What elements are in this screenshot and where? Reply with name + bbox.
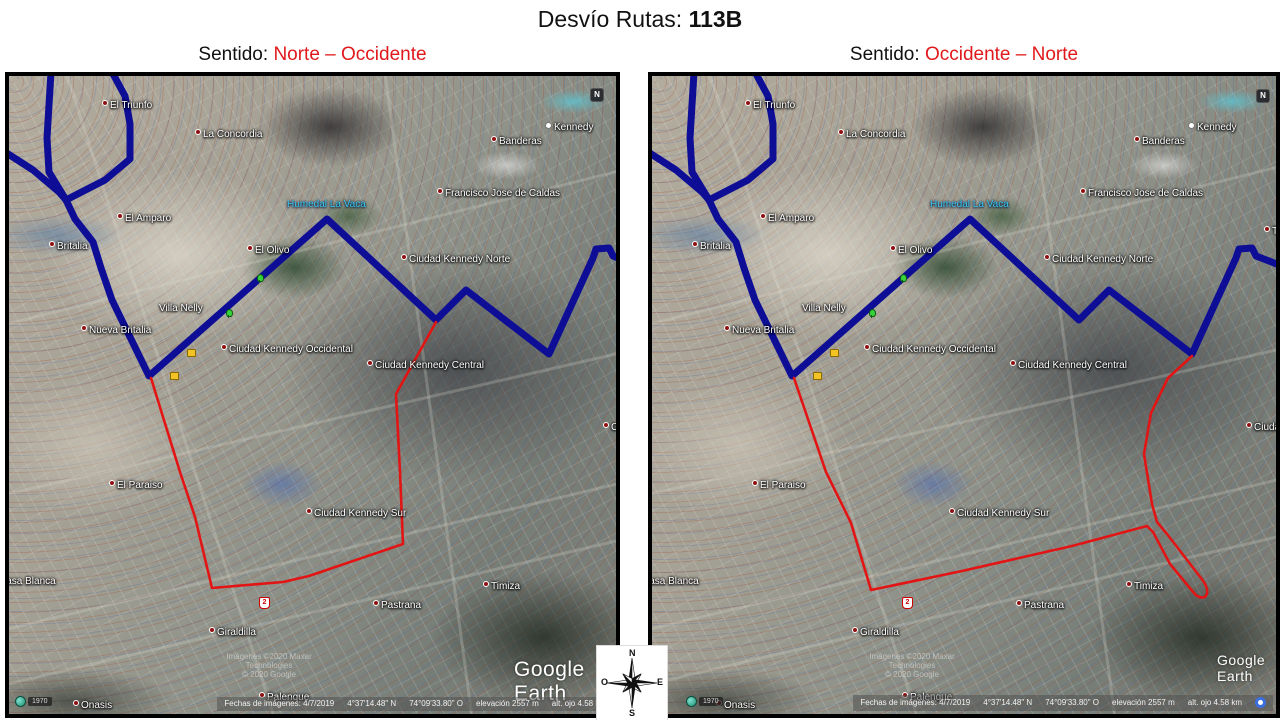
north-up-button[interactable]: N	[590, 88, 604, 102]
compass-west-label: O	[601, 677, 608, 687]
place-dot-icon	[221, 344, 227, 350]
road-marker-icon	[187, 349, 196, 357]
routes-svg	[9, 76, 616, 714]
map-label-la-concordia: La Concordia	[838, 129, 905, 140]
imagery-date: Fechas de imágenes: 4/7/2019	[860, 698, 970, 707]
map-label-giraldilla: Giraldilla	[209, 627, 256, 638]
place-dot-icon	[209, 627, 215, 633]
map-label-banderas: Banderas	[1134, 136, 1185, 147]
eye-altitude: alt. ojo 4.58 km	[1188, 698, 1242, 707]
map-label-techo: Techo	[1264, 226, 1276, 237]
page-title: Desvío Rutas: 113B	[0, 6, 1280, 33]
map-label-timiza: Timiza	[1126, 581, 1163, 592]
sentido-direction: Norte – Occidente	[273, 44, 426, 65]
map-label-humedal-la-vaca: Humedal La Vaca	[287, 200, 366, 210]
place-dot-icon	[306, 508, 312, 514]
place-dot-icon	[1044, 254, 1050, 260]
route-blue-main	[652, 152, 709, 200]
map-panel-norte-occidente: El TriunfoLa ConcordiaKennedyBanderasFra…	[5, 72, 620, 718]
place-dot-icon	[373, 600, 379, 606]
place-pin-icon	[545, 122, 552, 129]
place-dot-icon	[752, 480, 758, 486]
imagery-date: Fechas de imágenes: 4/7/2019	[224, 699, 334, 708]
place-dot-icon	[117, 213, 123, 219]
map-label-el-paraiso: El Paraiso	[752, 480, 806, 491]
map-label-el-olivo: El Olivo	[247, 245, 289, 256]
map-label-onasis: Onasis	[73, 700, 112, 711]
route-red-detour	[794, 356, 1207, 598]
attribution-line: © 2020 Google	[847, 670, 977, 679]
historical-imagery-icon[interactable]	[686, 696, 697, 707]
place-dot-icon	[102, 100, 108, 106]
place-dot-icon	[247, 245, 253, 251]
street-line	[707, 76, 922, 714]
map-label-ciudad-kennedy-occidental: Ciudad Kennedy Occidental	[221, 344, 353, 355]
longitude: 74°09'33.80" O	[409, 699, 463, 708]
attribution-line: Imágenes ©2020 Maxar Technologies	[204, 652, 334, 670]
place-dot-icon	[852, 627, 858, 633]
map-label-el-triunfo: El Triunfo	[102, 100, 152, 111]
route-blue-main	[9, 152, 66, 200]
street-line	[652, 344, 1276, 496]
map-label-ciudad-kennedy-sur: Ciudad Kennedy Sur	[949, 508, 1049, 519]
street-line	[9, 344, 616, 496]
place-dot-icon	[49, 241, 55, 247]
latitude: 4°37'14.48" N	[983, 698, 1032, 707]
north-up-button[interactable]: N	[1256, 89, 1270, 103]
google-earth-orb-icon	[1255, 697, 1266, 708]
slide: Desvío Rutas: 113B Sentido: Norte – Occi…	[0, 0, 1280, 720]
place-dot-icon	[109, 480, 115, 486]
map-label-ciudad-kennedy-occidental: Ciudad Kennedy Occidental	[864, 344, 996, 355]
imagery-attribution: Imágenes ©2020 Maxar Technologies © 2020…	[204, 652, 334, 679]
map-label-ciudad-kennedy-norte: Ciudad Kennedy Norte	[1044, 254, 1153, 265]
place-dot-icon	[864, 344, 870, 350]
map-label-el-paraiso: El Paraiso	[109, 480, 163, 491]
map-label-nueva-britalia: Nueva Britalia	[724, 325, 794, 336]
map-label-la-concordia: La Concordia	[195, 129, 262, 140]
map-label-ciudad-kennedy-central: Ciudad Kennedy Central	[1010, 360, 1127, 371]
place-dot-icon	[760, 213, 766, 219]
place-dot-icon	[1080, 188, 1086, 194]
sentido-direction: Occidente – Norte	[925, 44, 1078, 65]
elevation: elevación 2557 m	[1112, 698, 1175, 707]
map-label-humedal-la-vaca: Humedal La Vaca	[930, 200, 1009, 210]
compass-point	[607, 683, 632, 686]
compass-south-label: S	[629, 708, 635, 718]
street-line	[64, 76, 279, 714]
map-label-britalia: Britalia	[692, 241, 731, 252]
status-bar: Fechas de imágenes: 4/7/2019 4°37'14.48"…	[853, 695, 1273, 711]
map-label-ciudad: Ciudad	[603, 422, 616, 433]
tree-icon	[899, 274, 906, 283]
map-label-villa-nelly: Villa Nelly	[159, 304, 203, 314]
map-label-banderas: Banderas	[491, 136, 542, 147]
street-line	[1027, 76, 1117, 714]
place-dot-icon	[890, 245, 896, 251]
place-dot-icon	[745, 100, 751, 106]
elevation: elevación 2557 m	[476, 699, 539, 708]
imagery-year-badge: 1970	[28, 697, 52, 706]
map-label-ciudad-kennedy-norte: Ciudad Kennedy Norte	[401, 254, 510, 265]
left-panel-heading: Sentido: Norte – Occidente	[5, 44, 620, 66]
map-label-el-olivo: El Olivo	[890, 245, 932, 256]
right-panel-heading: Sentido: Occidente – Norte	[648, 44, 1280, 66]
longitude: 74°09'33.80" O	[1045, 698, 1099, 707]
map-label-villa-nelly: Villa Nelly	[802, 304, 846, 314]
place-dot-icon	[367, 360, 373, 366]
map-label-timiza: Timiza	[483, 581, 520, 592]
place-dot-icon	[401, 254, 407, 260]
road-marker-icon	[830, 349, 839, 357]
place-dot-icon	[483, 581, 489, 587]
place-dot-icon	[1264, 226, 1270, 232]
map-label-el-triunfo: El Triunfo	[745, 100, 795, 111]
compass-east-label: E	[657, 677, 663, 687]
sentido-label: Sentido:	[850, 44, 920, 65]
compass-point	[632, 680, 657, 683]
place-pin-icon	[1188, 122, 1195, 129]
place-dot-icon	[1016, 600, 1022, 606]
map-label-pastrana: Pastrana	[373, 600, 421, 611]
street-line	[9, 474, 616, 631]
route-number-shield: 2	[259, 597, 270, 609]
map-label-francisco-jose-de-caldas: Francisco Jose de Caldas	[1080, 188, 1203, 199]
title-prefix: Desvío Rutas:	[538, 6, 689, 32]
compass-point	[632, 683, 635, 708]
satellite-map-viewport[interactable]: El TriunfoLa ConcordiaKennedyBanderasFra…	[9, 76, 616, 714]
imagery-year-badge: 1970	[699, 697, 723, 706]
map-label-kennedy: Kennedy	[545, 122, 593, 133]
map-label-kennedy: Kennedy	[1188, 122, 1236, 133]
map-label-casa-blanca: Casa Blanca	[652, 577, 699, 587]
map-panel-occidente-norte: El TriunfoLa ConcordiaKennedyBanderasFra…	[648, 72, 1280, 718]
street-line	[384, 76, 474, 714]
place-dot-icon	[437, 188, 443, 194]
map-label-ciudad-kennedy-sur: Ciudad Kennedy Sur	[306, 508, 406, 519]
route-blue-main	[66, 76, 130, 200]
compass-rose: N S E O	[597, 646, 667, 720]
map-label-giraldilla: Giraldilla	[852, 627, 899, 638]
imagery-attribution: Imágenes ©2020 Maxar Technologies © 2020…	[847, 652, 977, 679]
place-dot-icon	[1134, 136, 1140, 142]
map-label-el-amparo: El Amparo	[760, 213, 814, 224]
map-label-ciudad-kennedy-central: Ciudad Kennedy Central	[367, 360, 484, 371]
satellite-map-viewport[interactable]: El TriunfoLa ConcordiaKennedyBanderasFra…	[652, 76, 1276, 714]
place-dot-icon	[724, 325, 730, 331]
map-label-pastrana: Pastrana	[1016, 600, 1064, 611]
road-marker-icon	[170, 372, 179, 380]
place-dot-icon	[73, 700, 79, 706]
place-dot-icon	[81, 325, 87, 331]
map-label-nueva-britalia: Nueva Britalia	[81, 325, 151, 336]
place-dot-icon	[603, 422, 609, 428]
sentido-label: Sentido:	[198, 44, 268, 65]
road-marker-icon	[813, 372, 822, 380]
google-earth-logo: Google Earth	[1217, 652, 1276, 684]
place-dot-icon	[491, 136, 497, 142]
place-dot-icon	[692, 241, 698, 247]
map-label-britalia: Britalia	[49, 241, 88, 252]
place-dot-icon	[1126, 581, 1132, 587]
route-number-shield: 2	[902, 597, 913, 609]
place-dot-icon	[1246, 422, 1252, 428]
map-label-francisco-jose-de-caldas: Francisco Jose de Caldas	[437, 188, 560, 199]
tree-icon	[225, 309, 232, 318]
tree-icon	[868, 309, 875, 318]
title-route-number: 113B	[689, 6, 743, 32]
place-dot-icon	[838, 129, 844, 135]
place-dot-icon	[1010, 360, 1016, 366]
tree-icon	[256, 274, 263, 283]
map-label-el-amparo: El Amparo	[117, 213, 171, 224]
route-blue-main	[709, 76, 773, 200]
place-dot-icon	[195, 129, 201, 135]
status-bar: Fechas de imágenes: 4/7/2019 4°37'14.48"…	[217, 697, 613, 711]
attribution-line: Imágenes ©2020 Maxar Technologies	[847, 652, 977, 670]
map-label-casa-blanca: Casa Blanca	[9, 577, 56, 587]
routes-svg	[652, 76, 1276, 714]
attribution-line: © 2020 Google	[204, 670, 334, 679]
map-label-ciudad: Ciudad	[1246, 422, 1276, 433]
historical-imagery-icon[interactable]	[15, 696, 26, 707]
place-dot-icon	[949, 508, 955, 514]
latitude: 4°37'14.48" N	[347, 699, 396, 708]
compass-north-label: N	[629, 648, 636, 658]
